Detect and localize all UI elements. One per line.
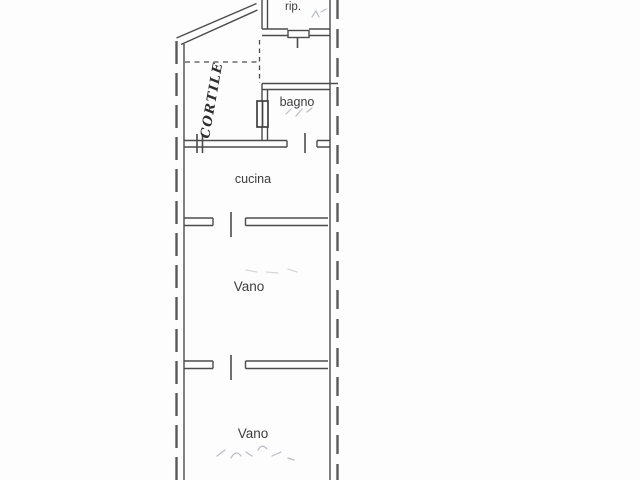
vano-divider-left-stub bbox=[184, 361, 213, 369]
vano-divider-wall bbox=[184, 355, 328, 380]
rip-left-wall bbox=[262, 0, 268, 29]
room-label-cucina: cucina bbox=[235, 172, 271, 186]
room-labels: rip. bagno cucina Vano Vano CORTILE bbox=[198, 1, 314, 441]
cucina-bottom-wall-right-segment bbox=[246, 218, 329, 226]
pencil-mark-vano2 bbox=[217, 446, 294, 460]
bagno-top-wall bbox=[262, 84, 338, 90]
vano-divider-right-segment bbox=[246, 361, 329, 369]
room-label-cortile-handwritten: CORTILE bbox=[198, 61, 226, 140]
perimeter-walls bbox=[177, 0, 338, 480]
room-label-rip: rip. bbox=[285, 1, 301, 13]
pencil-smudge-vano1 bbox=[246, 269, 297, 273]
cucina-top-wall-left-segment bbox=[184, 141, 287, 148]
cucina-bottom-wall-left-stub bbox=[184, 218, 213, 226]
cucina-bottom-wall bbox=[184, 212, 328, 237]
cucina-top-wall-right-segment bbox=[317, 141, 330, 148]
room-label-bagno: bagno bbox=[280, 95, 315, 109]
pencil-mark-bagno bbox=[286, 108, 312, 116]
rip-door-symbol bbox=[288, 31, 309, 38]
scanned-floor-plan-page: rip. bagno cucina Vano Vano CORTILE bbox=[0, 0, 640, 480]
slanted-wall bbox=[177, 4, 258, 45]
faint-pencil-marks bbox=[217, 9, 326, 460]
pencil-mark-rip bbox=[312, 9, 326, 17]
bagno-room-walls bbox=[257, 84, 338, 141]
room-label-vano-1: Vano bbox=[234, 279, 265, 294]
floor-plan-drawing: rip. bagno cucina Vano Vano CORTILE bbox=[0, 0, 640, 480]
room-label-vano-2: Vano bbox=[238, 426, 269, 441]
